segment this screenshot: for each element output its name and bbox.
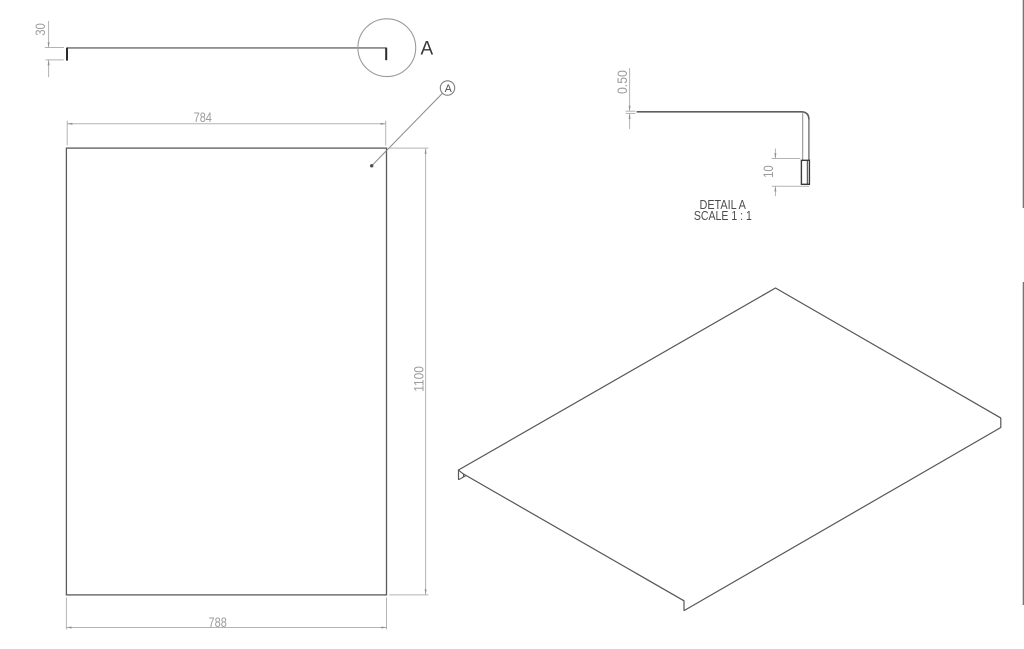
- svg-text:0.50: 0.50: [615, 70, 630, 94]
- svg-text:SCALE 1 : 1: SCALE 1 : 1: [694, 209, 752, 223]
- svg-text:30: 30: [33, 23, 48, 36]
- svg-text:10: 10: [761, 165, 776, 178]
- svg-text:788: 788: [209, 615, 227, 630]
- svg-text:A: A: [445, 83, 453, 95]
- svg-text:784: 784: [194, 110, 213, 125]
- svg-text:1100: 1100: [412, 366, 427, 392]
- svg-text:A: A: [421, 39, 434, 60]
